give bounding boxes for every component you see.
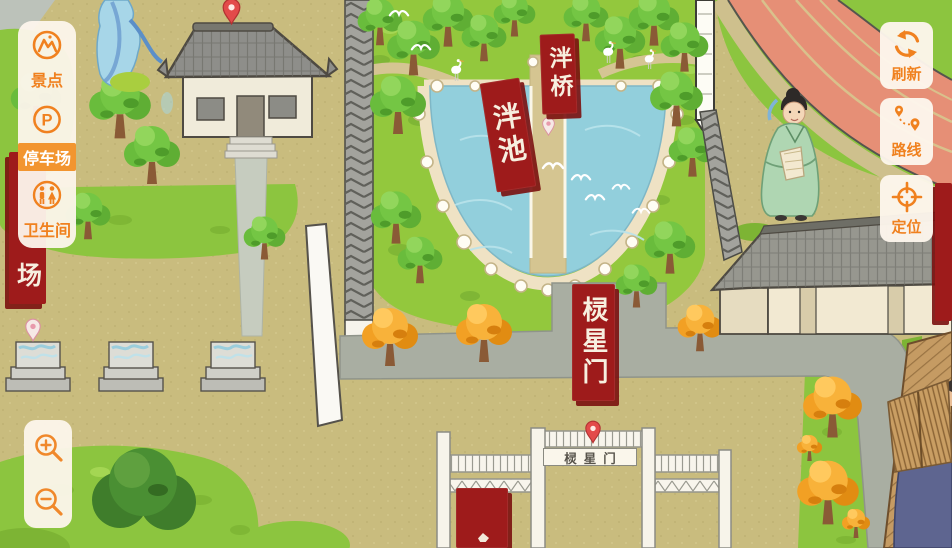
locate-icon (890, 180, 924, 214)
zoom-in-icon (30, 429, 66, 465)
refresh-icon (890, 27, 924, 61)
scenic-map-app: 泮池 泮桥 棂星门 场 棂星门 景点 P 停车场 卫生间 (0, 0, 952, 548)
sidebar-item-label: 卫生间 (23, 217, 71, 241)
sidebar-item-label: 停车场 (18, 143, 76, 171)
map-label-lingxingmen[interactable]: 棂星门 (572, 284, 615, 401)
sidebar-item-scenic-spots[interactable]: 景点 (18, 21, 76, 96)
locate-button[interactable]: 定位 (880, 175, 933, 242)
sidebar-filter-panel: 景点 P 停车场 卫生间 (18, 21, 76, 248)
zoom-out-button[interactable] (24, 476, 72, 526)
route-label: 路线 (891, 139, 921, 160)
refresh-label: 刷新 (891, 63, 921, 84)
partial-glyph (478, 533, 489, 542)
map-canvas[interactable] (0, 0, 952, 548)
refresh-button[interactable]: 刷新 (880, 22, 933, 89)
sidebar-item-label: 景点 (31, 67, 63, 91)
map-label-bottom-partial (456, 488, 508, 548)
route-button[interactable]: 路线 (880, 98, 933, 165)
zoom-in-button[interactable] (24, 422, 72, 472)
stone-pedestals (6, 342, 265, 391)
zoom-control-panel (24, 420, 72, 528)
locate-label: 定位 (891, 216, 921, 237)
zoom-out-icon (30, 483, 66, 519)
svg-text:P: P (41, 112, 52, 130)
gate-sign: 棂星门 (543, 448, 637, 466)
route-icon (890, 103, 924, 137)
sidebar-item-parking[interactable]: P 停车场 (18, 96, 76, 171)
sidebar-item-restroom[interactable]: 卫生间 (18, 171, 76, 246)
scenic-spots-icon (30, 28, 64, 62)
restroom-icon (30, 178, 64, 212)
tiled-wall (345, 0, 373, 360)
parking-icon: P (30, 103, 64, 136)
map-label-right-partial (935, 183, 952, 321)
map-label-panqiao[interactable]: 泮桥 (540, 33, 578, 114)
